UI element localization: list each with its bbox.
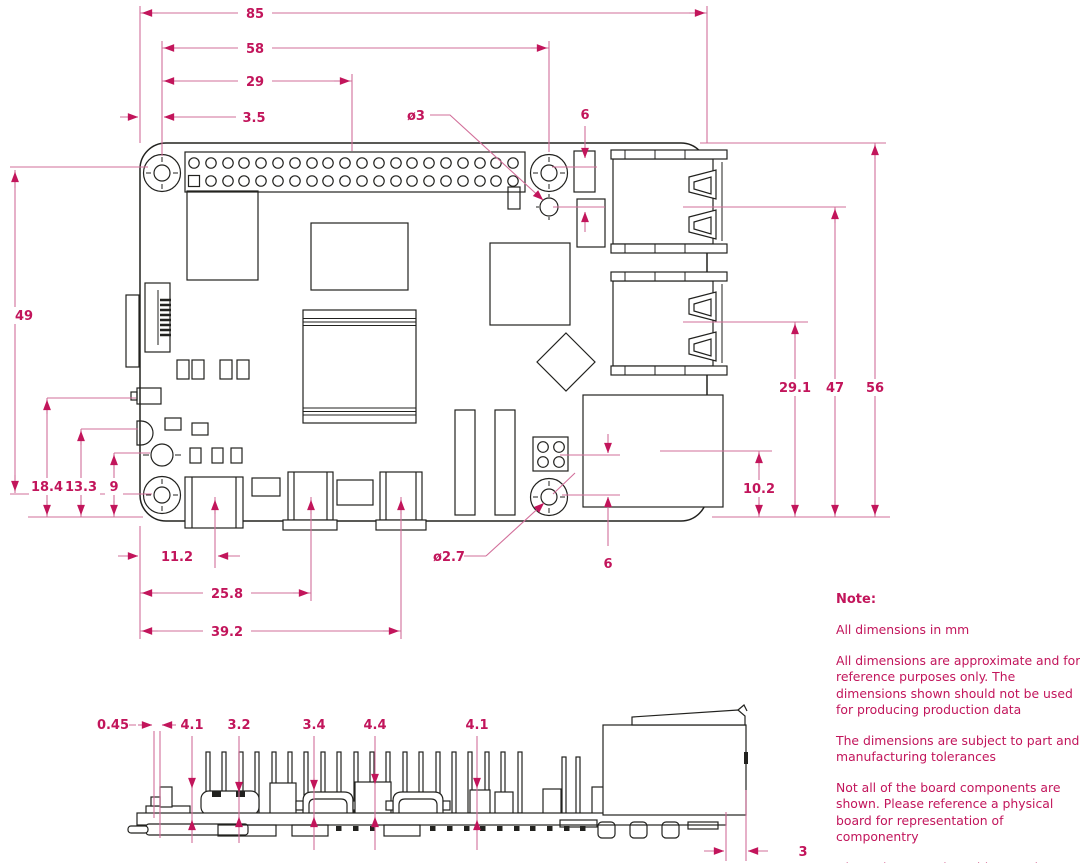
note-line-components: Not all of the board components are show… xyxy=(836,780,1080,846)
dim-comp-9: 9 xyxy=(109,480,118,495)
dim-hdmi1-center: 39.2 xyxy=(211,625,243,640)
dim-comp-18-4: 18.4 xyxy=(31,480,63,495)
usb-c-side xyxy=(201,791,259,815)
diamond-component xyxy=(537,333,595,391)
dim-pad-offset-bottom: 6 xyxy=(603,557,612,572)
micro-hdmi-0-side xyxy=(296,792,360,815)
left-edge-components xyxy=(131,388,161,445)
usb-c-power xyxy=(185,477,243,528)
board-top-view xyxy=(126,143,727,530)
mount-hole-tl xyxy=(144,155,181,192)
chip-a xyxy=(187,191,258,280)
dim-hole-span-x: 58 xyxy=(246,42,264,57)
note-line-units: All dimensions in mm xyxy=(836,622,1080,639)
note-line-tolerances: The dimensions are subject to part and m… xyxy=(836,733,1080,766)
camera-connector-0 xyxy=(455,410,475,515)
note-title: Note: xyxy=(836,592,1080,607)
dim-board-depth: 56 xyxy=(866,381,884,396)
sd-card-side xyxy=(128,824,248,835)
dimension-labels: 85 58 29 3.5 ø3 6 49 18.4 13.3 9 11.2 25… xyxy=(15,7,884,860)
pad-component-2 xyxy=(577,199,605,247)
dim-hole-dia-top: ø3 xyxy=(407,109,425,124)
usb-stack-upper xyxy=(611,150,727,253)
mount-hole-tr xyxy=(531,155,568,192)
dim-usb-lower: 29.1 xyxy=(779,381,811,396)
notes-block: Note: All dimensions in mm All dimension… xyxy=(836,592,1080,863)
power-test-point xyxy=(143,444,181,466)
dim-usb-upper: 47 xyxy=(826,381,844,396)
chip-b xyxy=(490,243,570,325)
dim-pad-offset-top: 6 xyxy=(580,108,589,123)
dim-gpio-center: 29 xyxy=(246,75,264,90)
dim-hdmi-height: 3.4 xyxy=(302,718,325,733)
usb-stack-lower xyxy=(611,272,727,375)
gpio-pin1-square xyxy=(189,176,200,187)
dim-sd-overhang: 0.45 xyxy=(97,718,129,733)
chip-ram xyxy=(303,310,416,423)
gpio-header xyxy=(185,152,525,192)
dim-component-height: 4.4 xyxy=(363,718,386,733)
side-connectors xyxy=(146,782,607,816)
dimension-drawing-page: 85 58 29 3.5 ø3 6 49 18.4 13.3 9 11.2 25… xyxy=(0,0,1080,863)
dim-overall-width: 85 xyxy=(246,7,264,22)
solder-pads xyxy=(336,826,586,831)
display-connector xyxy=(126,283,171,367)
poe-header xyxy=(533,437,568,471)
dim-bracket-height-2: 4.1 xyxy=(465,718,488,733)
usb-block-side xyxy=(603,705,748,815)
dim-usb-c-center: 11.2 xyxy=(161,550,193,565)
dim-hole-dia-bottom: ø2.7 xyxy=(433,550,465,565)
dim-usb-overhang: 3 xyxy=(798,845,807,860)
note-line-change: Dimensions may be subject to change xyxy=(836,860,1080,863)
dim-hole-offset: 3.5 xyxy=(242,111,265,126)
camera-connector-1 xyxy=(495,410,515,515)
dim-comp-13-3: 13.3 xyxy=(65,480,97,495)
mount-hole-bl xyxy=(144,477,181,514)
dim-hole-span-y: 49 xyxy=(15,309,33,324)
dim-usb-c-height: 3.2 xyxy=(227,718,250,733)
dim-ethernet-center: 10.2 xyxy=(743,482,775,497)
micro-hdmi-0 xyxy=(283,472,337,530)
chip-soc xyxy=(311,223,408,290)
dim-hdmi0-center: 25.8 xyxy=(211,587,243,602)
board-side-view xyxy=(128,705,748,838)
micro-hdmi-1-side xyxy=(386,792,450,815)
dim-bracket-height: 4.1 xyxy=(180,718,203,733)
note-line-reference: All dimensions are approximate and for r… xyxy=(836,653,1080,719)
